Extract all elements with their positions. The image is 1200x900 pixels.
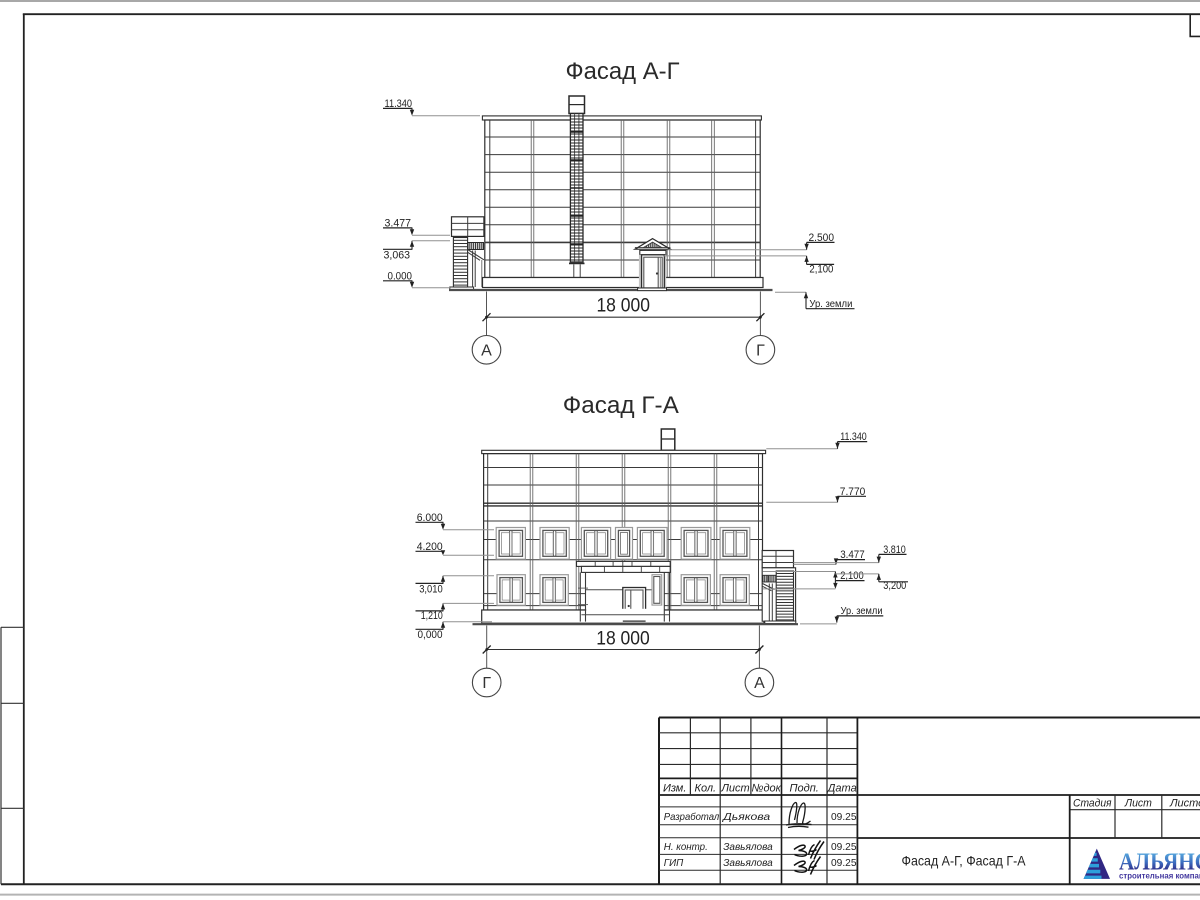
svg-text:Г: Г <box>482 675 491 692</box>
svg-text:11.340: 11.340 <box>840 431 867 443</box>
svg-text:Фасад Г-А: Фасад Г-А <box>563 392 680 419</box>
svg-text:2,100: 2,100 <box>809 264 833 276</box>
svg-text:09.25: 09.25 <box>831 857 857 869</box>
svg-text:3.810: 3.810 <box>883 544 906 556</box>
svg-text:3.477: 3.477 <box>840 549 865 561</box>
svg-text:09.25: 09.25 <box>831 841 857 853</box>
svg-text:3,200: 3,200 <box>883 580 906 592</box>
svg-text:Завьялова: Завьялова <box>723 857 773 869</box>
svg-text:Кол.: Кол. <box>694 782 716 794</box>
svg-text:3,063: 3,063 <box>384 249 411 261</box>
svg-text:Лист: Лист <box>720 782 749 794</box>
svg-text:09.25: 09.25 <box>831 811 857 823</box>
svg-text:Фасад А-Г, Фасад Г-А: Фасад А-Г, Фасад Г-А <box>902 853 1027 869</box>
svg-text:18 000: 18 000 <box>596 629 650 650</box>
svg-text:строительная компания: строительная компания <box>1119 871 1200 881</box>
svg-text:Ур. земли: Ур. земли <box>841 605 883 617</box>
svg-text:Н. контр.: Н. контр. <box>664 841 708 853</box>
svg-text:ГИП: ГИП <box>664 857 684 869</box>
svg-text:2.500: 2.500 <box>809 232 835 244</box>
svg-text:Г: Г <box>756 342 765 359</box>
svg-text:Разработал: Разработал <box>664 811 720 823</box>
svg-text:0,000: 0,000 <box>418 629 443 641</box>
svg-text:7.770: 7.770 <box>840 486 866 498</box>
svg-text:А: А <box>754 675 765 692</box>
svg-text:Ур. земли: Ур. земли <box>809 298 852 310</box>
svg-text:Дьякова: Дьякова <box>722 811 770 823</box>
svg-text:18 000: 18 000 <box>596 296 650 317</box>
svg-text:Завьялова: Завьялова <box>723 841 773 853</box>
svg-text:№док: №док <box>752 782 782 794</box>
svg-text:Лист: Лист <box>1124 798 1152 810</box>
svg-text:3,010: 3,010 <box>419 583 443 595</box>
svg-text:А: А <box>481 342 492 359</box>
svg-text:Стадия: Стадия <box>1073 798 1112 810</box>
svg-text:Дата: Дата <box>826 782 857 794</box>
svg-text:Листов: Листов <box>1169 798 1200 810</box>
svg-text:Фасад А-Г: Фасад А-Г <box>566 58 680 85</box>
svg-text:Подп.: Подп. <box>790 782 819 794</box>
svg-text:2,100: 2,100 <box>840 570 864 582</box>
svg-text:1,210: 1,210 <box>421 610 443 622</box>
svg-text:Изм.: Изм. <box>663 782 686 794</box>
